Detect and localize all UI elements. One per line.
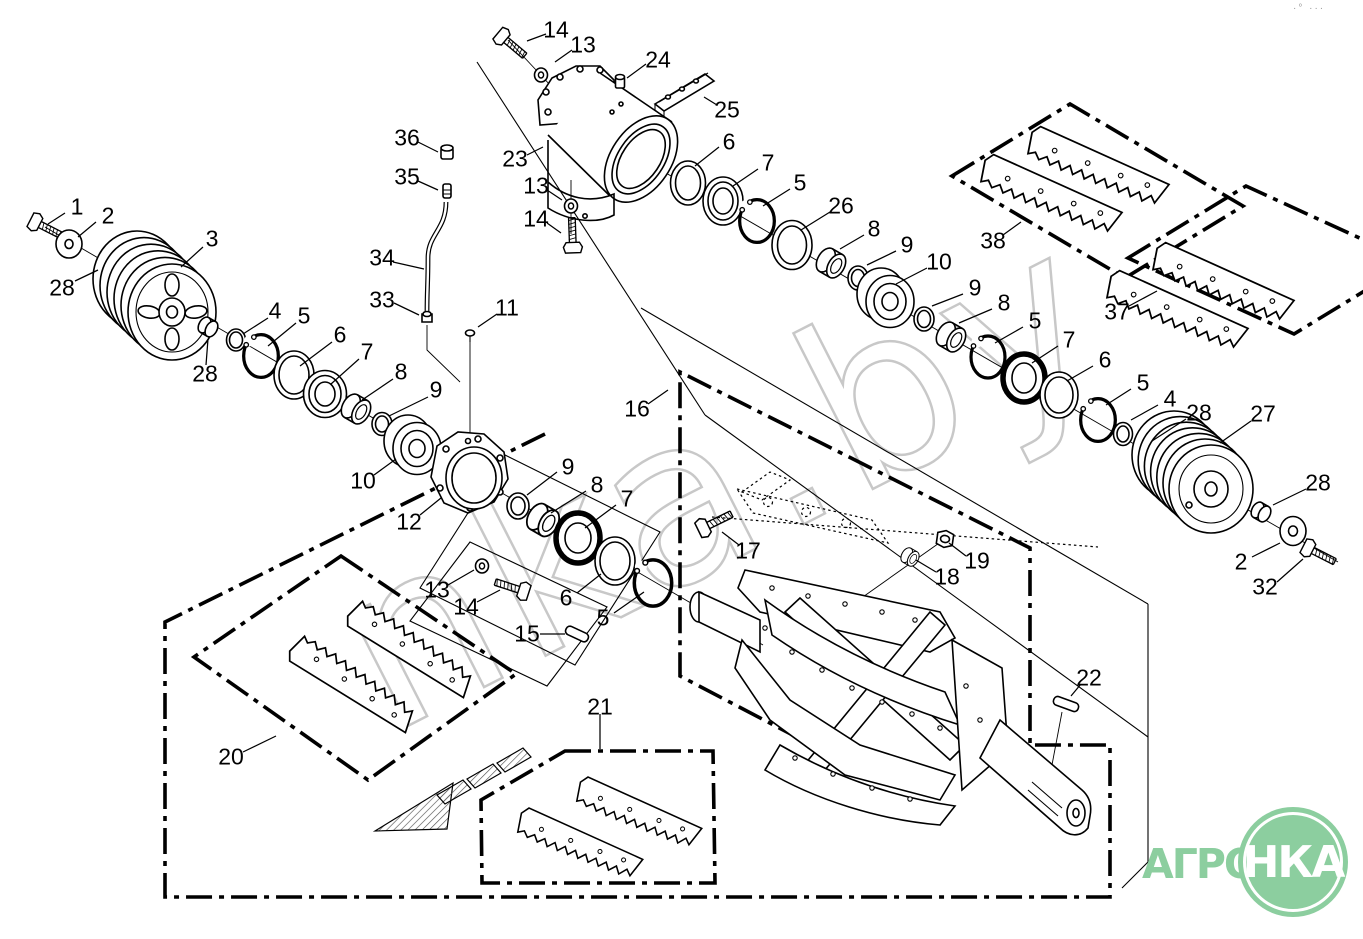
callout-21: 21	[587, 696, 613, 719]
callout-2: 2	[102, 205, 115, 228]
callout-18: 18	[934, 566, 960, 589]
callout-37: 37	[1104, 301, 1130, 324]
callout-25: 25	[714, 99, 740, 122]
grease-fitting-35	[443, 184, 451, 198]
callout-26: 26	[828, 195, 854, 218]
nut-19	[936, 529, 954, 548]
washer-13-mid	[565, 199, 578, 213]
callout-23: 23	[502, 148, 528, 171]
washer-13-center	[476, 559, 489, 573]
callout-5: 5	[597, 607, 610, 630]
grease-cap-36	[441, 145, 453, 159]
callout-36: 36	[394, 127, 420, 150]
callout-9: 9	[969, 277, 982, 300]
ring-4-right	[1114, 423, 1133, 446]
pulley-27	[1132, 411, 1253, 533]
bolt-32	[1299, 537, 1339, 570]
callout-33: 33	[369, 289, 395, 312]
callout-8: 8	[591, 474, 604, 497]
callout-10: 10	[926, 251, 952, 274]
callout-4: 4	[269, 300, 282, 323]
callout-22: 22	[1076, 667, 1102, 690]
callout-28: 28	[49, 277, 75, 300]
callout-8: 8	[998, 292, 1011, 315]
bolt-14-mid	[562, 217, 582, 253]
callout-6: 6	[723, 131, 736, 154]
callout-11: 11	[495, 297, 519, 320]
callout-13: 13	[424, 579, 450, 602]
callout-1: 1	[71, 196, 84, 219]
callout-16: 16	[624, 398, 650, 421]
callout-5: 5	[1137, 372, 1150, 395]
ring-9-center	[507, 493, 529, 519]
bar-25	[655, 73, 714, 117]
callout-5: 5	[1029, 310, 1042, 333]
pulley-3	[93, 231, 216, 360]
washer-2-left	[56, 230, 82, 258]
callout-5: 5	[794, 172, 807, 195]
ring-6-center	[595, 537, 635, 585]
ring-26	[772, 221, 812, 270]
logo: АГРО НКА	[1128, 790, 1363, 939]
logo-circle: НКА	[1238, 807, 1348, 917]
callout-13: 13	[570, 34, 596, 57]
callout-9: 9	[430, 379, 443, 402]
washer-13-top	[535, 68, 548, 82]
ring-6-r1	[671, 161, 706, 205]
callout-14: 14	[523, 208, 549, 231]
fitting-11	[466, 330, 475, 342]
bushing-18	[898, 546, 921, 569]
bolt-14-top	[492, 26, 531, 63]
callout-13: 13	[523, 175, 549, 198]
callout-10: 10	[350, 470, 376, 493]
callout-5: 5	[298, 305, 311, 328]
callout-3: 3	[206, 228, 219, 251]
callout-6: 6	[334, 324, 347, 347]
callout-8: 8	[395, 361, 408, 384]
callout-24: 24	[645, 49, 671, 72]
washer-2-right	[1280, 517, 1306, 546]
callout-14: 14	[543, 19, 569, 42]
callout-7: 7	[762, 152, 775, 175]
callout-4: 4	[1164, 388, 1177, 411]
callout-17: 17	[735, 540, 761, 563]
snapring-5-r1	[740, 200, 775, 243]
key-22	[1052, 695, 1080, 712]
watermark-text: nka.by	[294, 174, 1145, 784]
seal-7-r	[1003, 354, 1045, 402]
seal-7-center	[556, 513, 600, 563]
callout-9: 9	[901, 234, 914, 257]
logo-circle-text: НКА	[1243, 837, 1344, 888]
ring-9-r2	[914, 307, 934, 331]
callout-7: 7	[621, 488, 634, 511]
exploded-parts-diagram: nka.by	[0, 0, 1363, 939]
grease-tube-34	[427, 202, 446, 312]
bushing-28-d	[1249, 500, 1274, 524]
callout-6: 6	[1099, 349, 1112, 372]
callout-7: 7	[361, 341, 374, 364]
callout-28: 28	[192, 363, 218, 386]
callout-2: 2	[1235, 551, 1248, 574]
callout-28: 28	[1186, 402, 1212, 425]
callout-38: 38	[980, 230, 1006, 253]
ring-7-left	[304, 371, 347, 418]
callout-19: 19	[964, 550, 990, 573]
callout-35: 35	[394, 166, 420, 189]
ring-4-left	[227, 329, 246, 351]
ring-6-r2	[1040, 372, 1078, 418]
corner-marks: ·° ···	[1293, 3, 1325, 14]
callout-15: 15	[514, 623, 540, 646]
bearing-housing-23	[538, 66, 693, 220]
callout-6: 6	[560, 587, 573, 610]
callout-28: 28	[1305, 472, 1331, 495]
callout-27: 27	[1250, 403, 1276, 426]
callout-34: 34	[369, 247, 395, 270]
callout-9: 9	[562, 456, 575, 479]
plug-24	[616, 75, 625, 89]
watermark-group: nka.by	[294, 174, 1145, 784]
ring-7-r1	[703, 177, 743, 225]
callout-14: 14	[453, 596, 479, 619]
callout-20: 20	[218, 746, 244, 769]
callout-12: 12	[396, 511, 422, 534]
callout-8: 8	[868, 218, 881, 241]
callout-7: 7	[1063, 329, 1076, 352]
callout-32: 32	[1252, 576, 1278, 599]
fitting-33	[422, 312, 432, 323]
